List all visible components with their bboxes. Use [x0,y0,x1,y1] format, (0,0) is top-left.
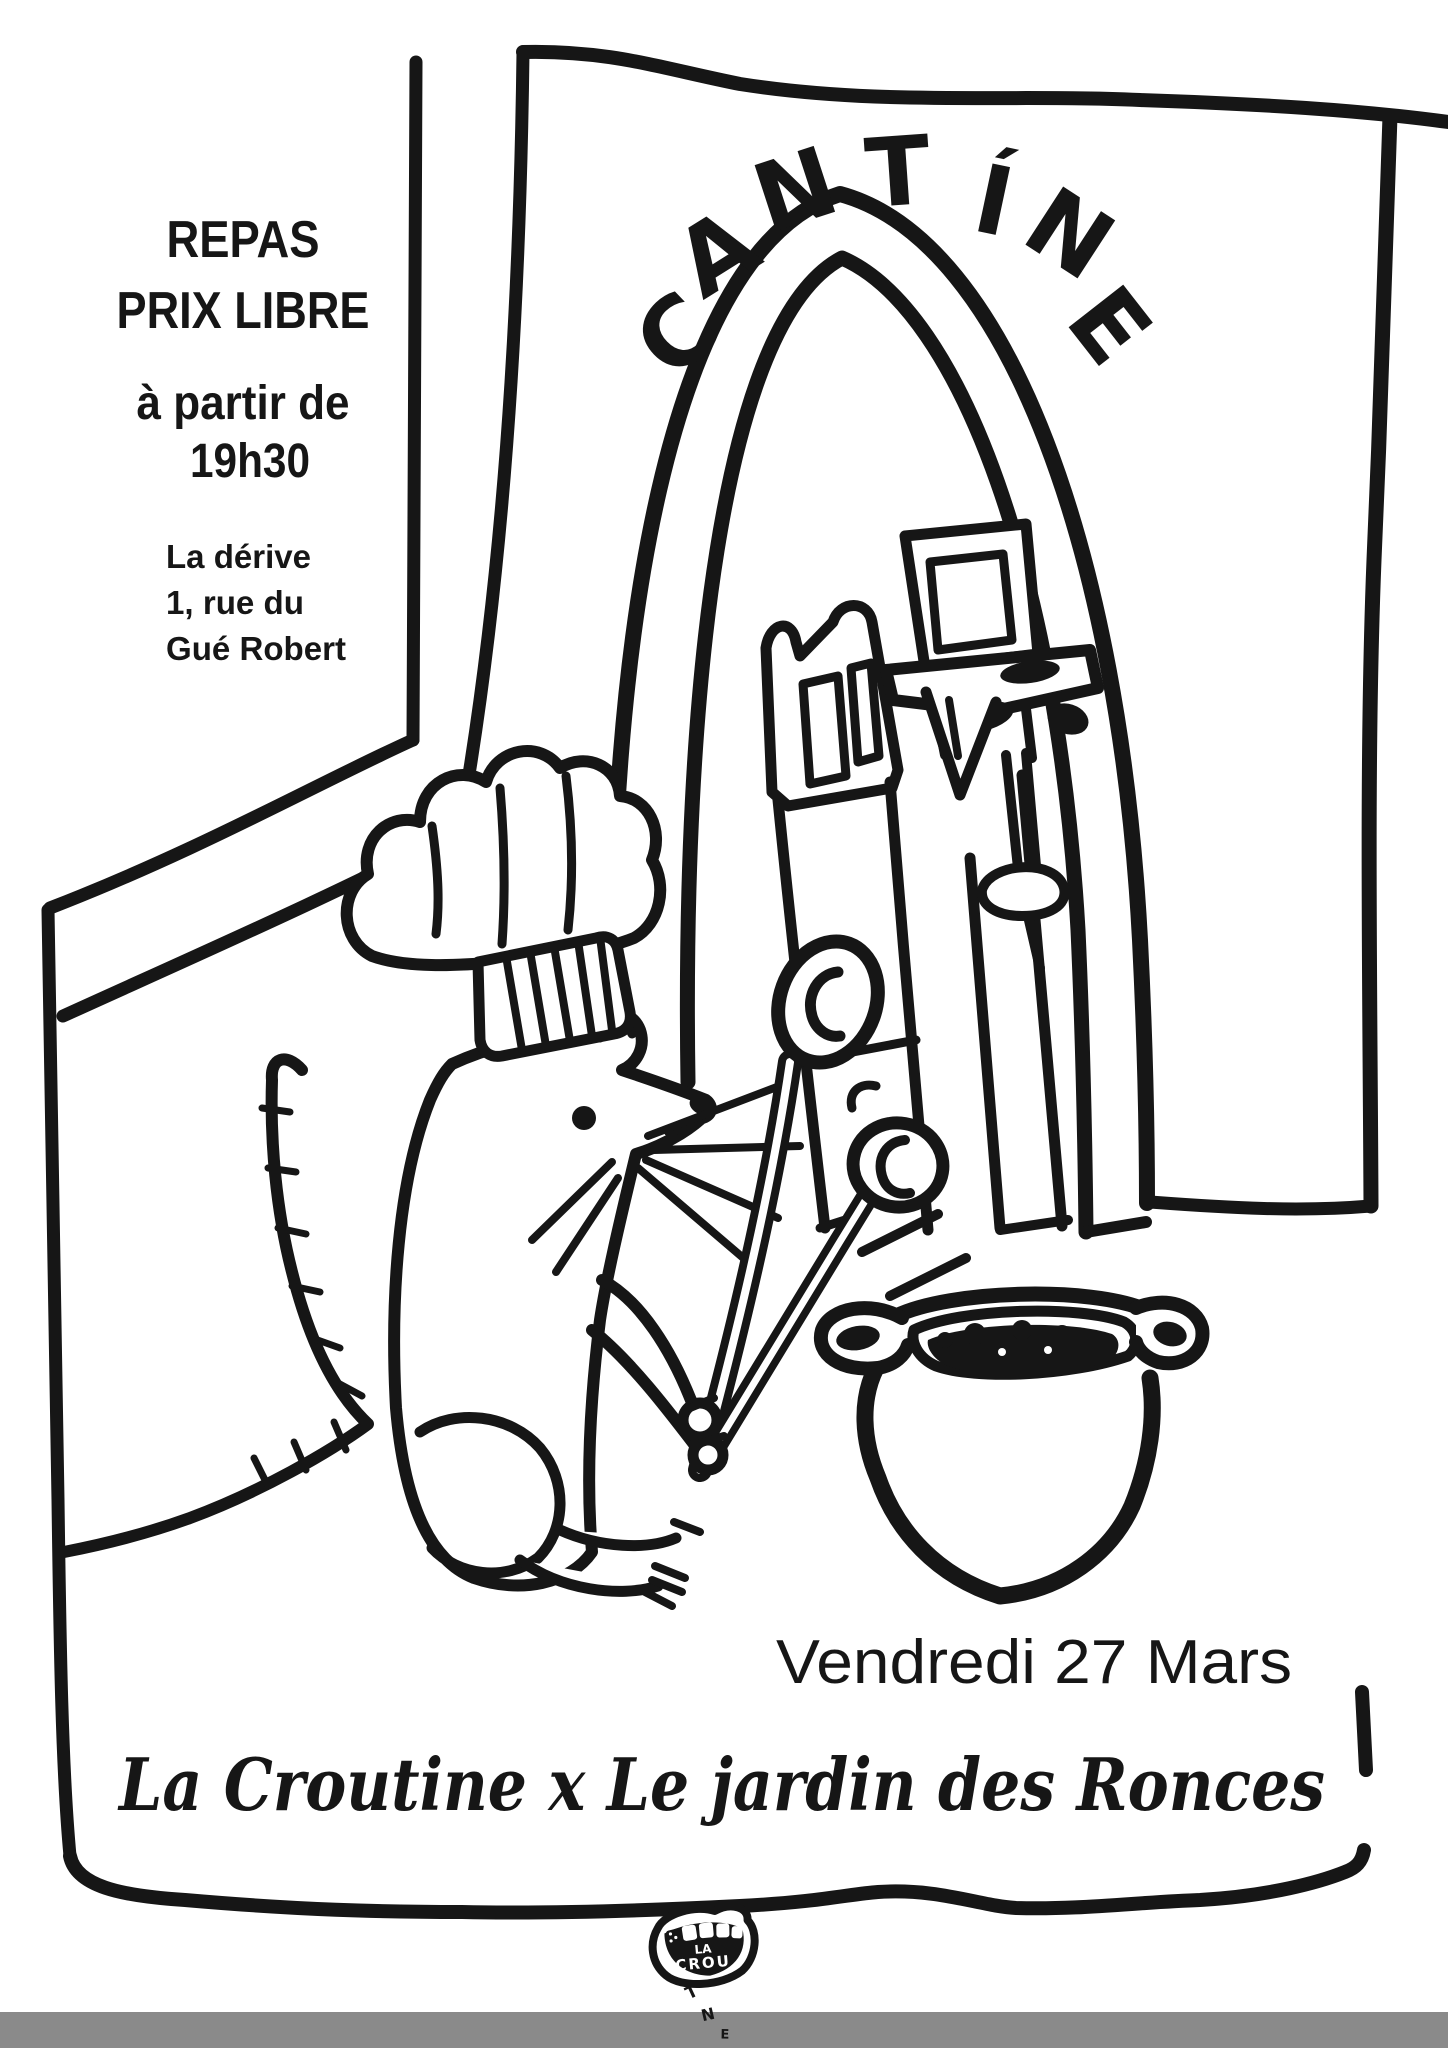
pot-contents-blob [1053,1325,1071,1343]
tooth [716,1923,729,1937]
cantine-sign: C A N T Í N E [614,116,1172,399]
cantine-poster: C A N T Í N E REPAS PRIX LIBRE à partir … [0,0,1448,2048]
arch-pillar-base [1086,1222,1146,1232]
chair-left-slat [851,663,879,762]
prix-libre-label: PRIX LIBRE [117,282,370,340]
event-date: Vendredi 27 Mars [776,1628,1292,1697]
wall-top-edge [523,52,1448,122]
sign-letter: T [862,116,935,230]
info-block: REPAS PRIX LIBRE à partir de 19h30 La dé… [117,211,370,667]
logo-drip-letter: E [720,2028,729,2043]
pot-contents-highlight [1044,1346,1052,1354]
venue-address-2: Gué Robert [166,630,346,667]
sign-letter: Í [965,143,1023,259]
tooth [699,1922,714,1938]
table-pedestal [1006,755,1018,868]
sign-letter: N [741,126,851,255]
floor-bottom-line [70,1850,1364,1913]
dining-furniture [766,524,1098,1230]
right-wall-edge [1369,116,1390,1206]
rat-body [394,1013,711,1586]
steam-curl [851,1085,876,1108]
repas-label: REPAS [167,211,320,269]
tooth [731,1926,743,1939]
venue-address-1: 1, rue du [166,584,304,621]
chair-right-rear-leg [1022,775,1062,1226]
poster-illustration: C A N T Í N E REPAS PRIX LIBRE à partir … [0,0,1448,2048]
rat-eye [572,1106,596,1130]
stray-ink-mark [1362,1692,1366,1770]
pot-body [865,1368,1152,1596]
pot-contents-blob [964,1323,986,1345]
tooth [681,1924,697,1941]
steam-dash [890,1258,966,1296]
venue-name: La dérive [166,538,311,575]
right-wall-bottom-edge [1150,1202,1371,1209]
pot-contents-blob [937,1332,953,1348]
pot-contents-highlight [998,1348,1006,1356]
logo-drip-letter: N [699,2004,716,2026]
rat-tail [64,1059,368,1552]
pot-contents-blob [1012,1320,1032,1340]
chair-left-slat [803,676,846,784]
a-partir-de-label: à partir de [137,377,350,430]
table-base [982,867,1065,916]
event-title: La Croutine x Le jardin des Ronces [117,1742,1325,1827]
time-label: 19h30 [190,435,310,488]
tablecloth-hanging-corner [926,692,996,795]
wall-corner-inner-edge [413,62,416,740]
wall-corner-outer-edge [460,52,523,828]
left-border-line [48,910,70,1856]
